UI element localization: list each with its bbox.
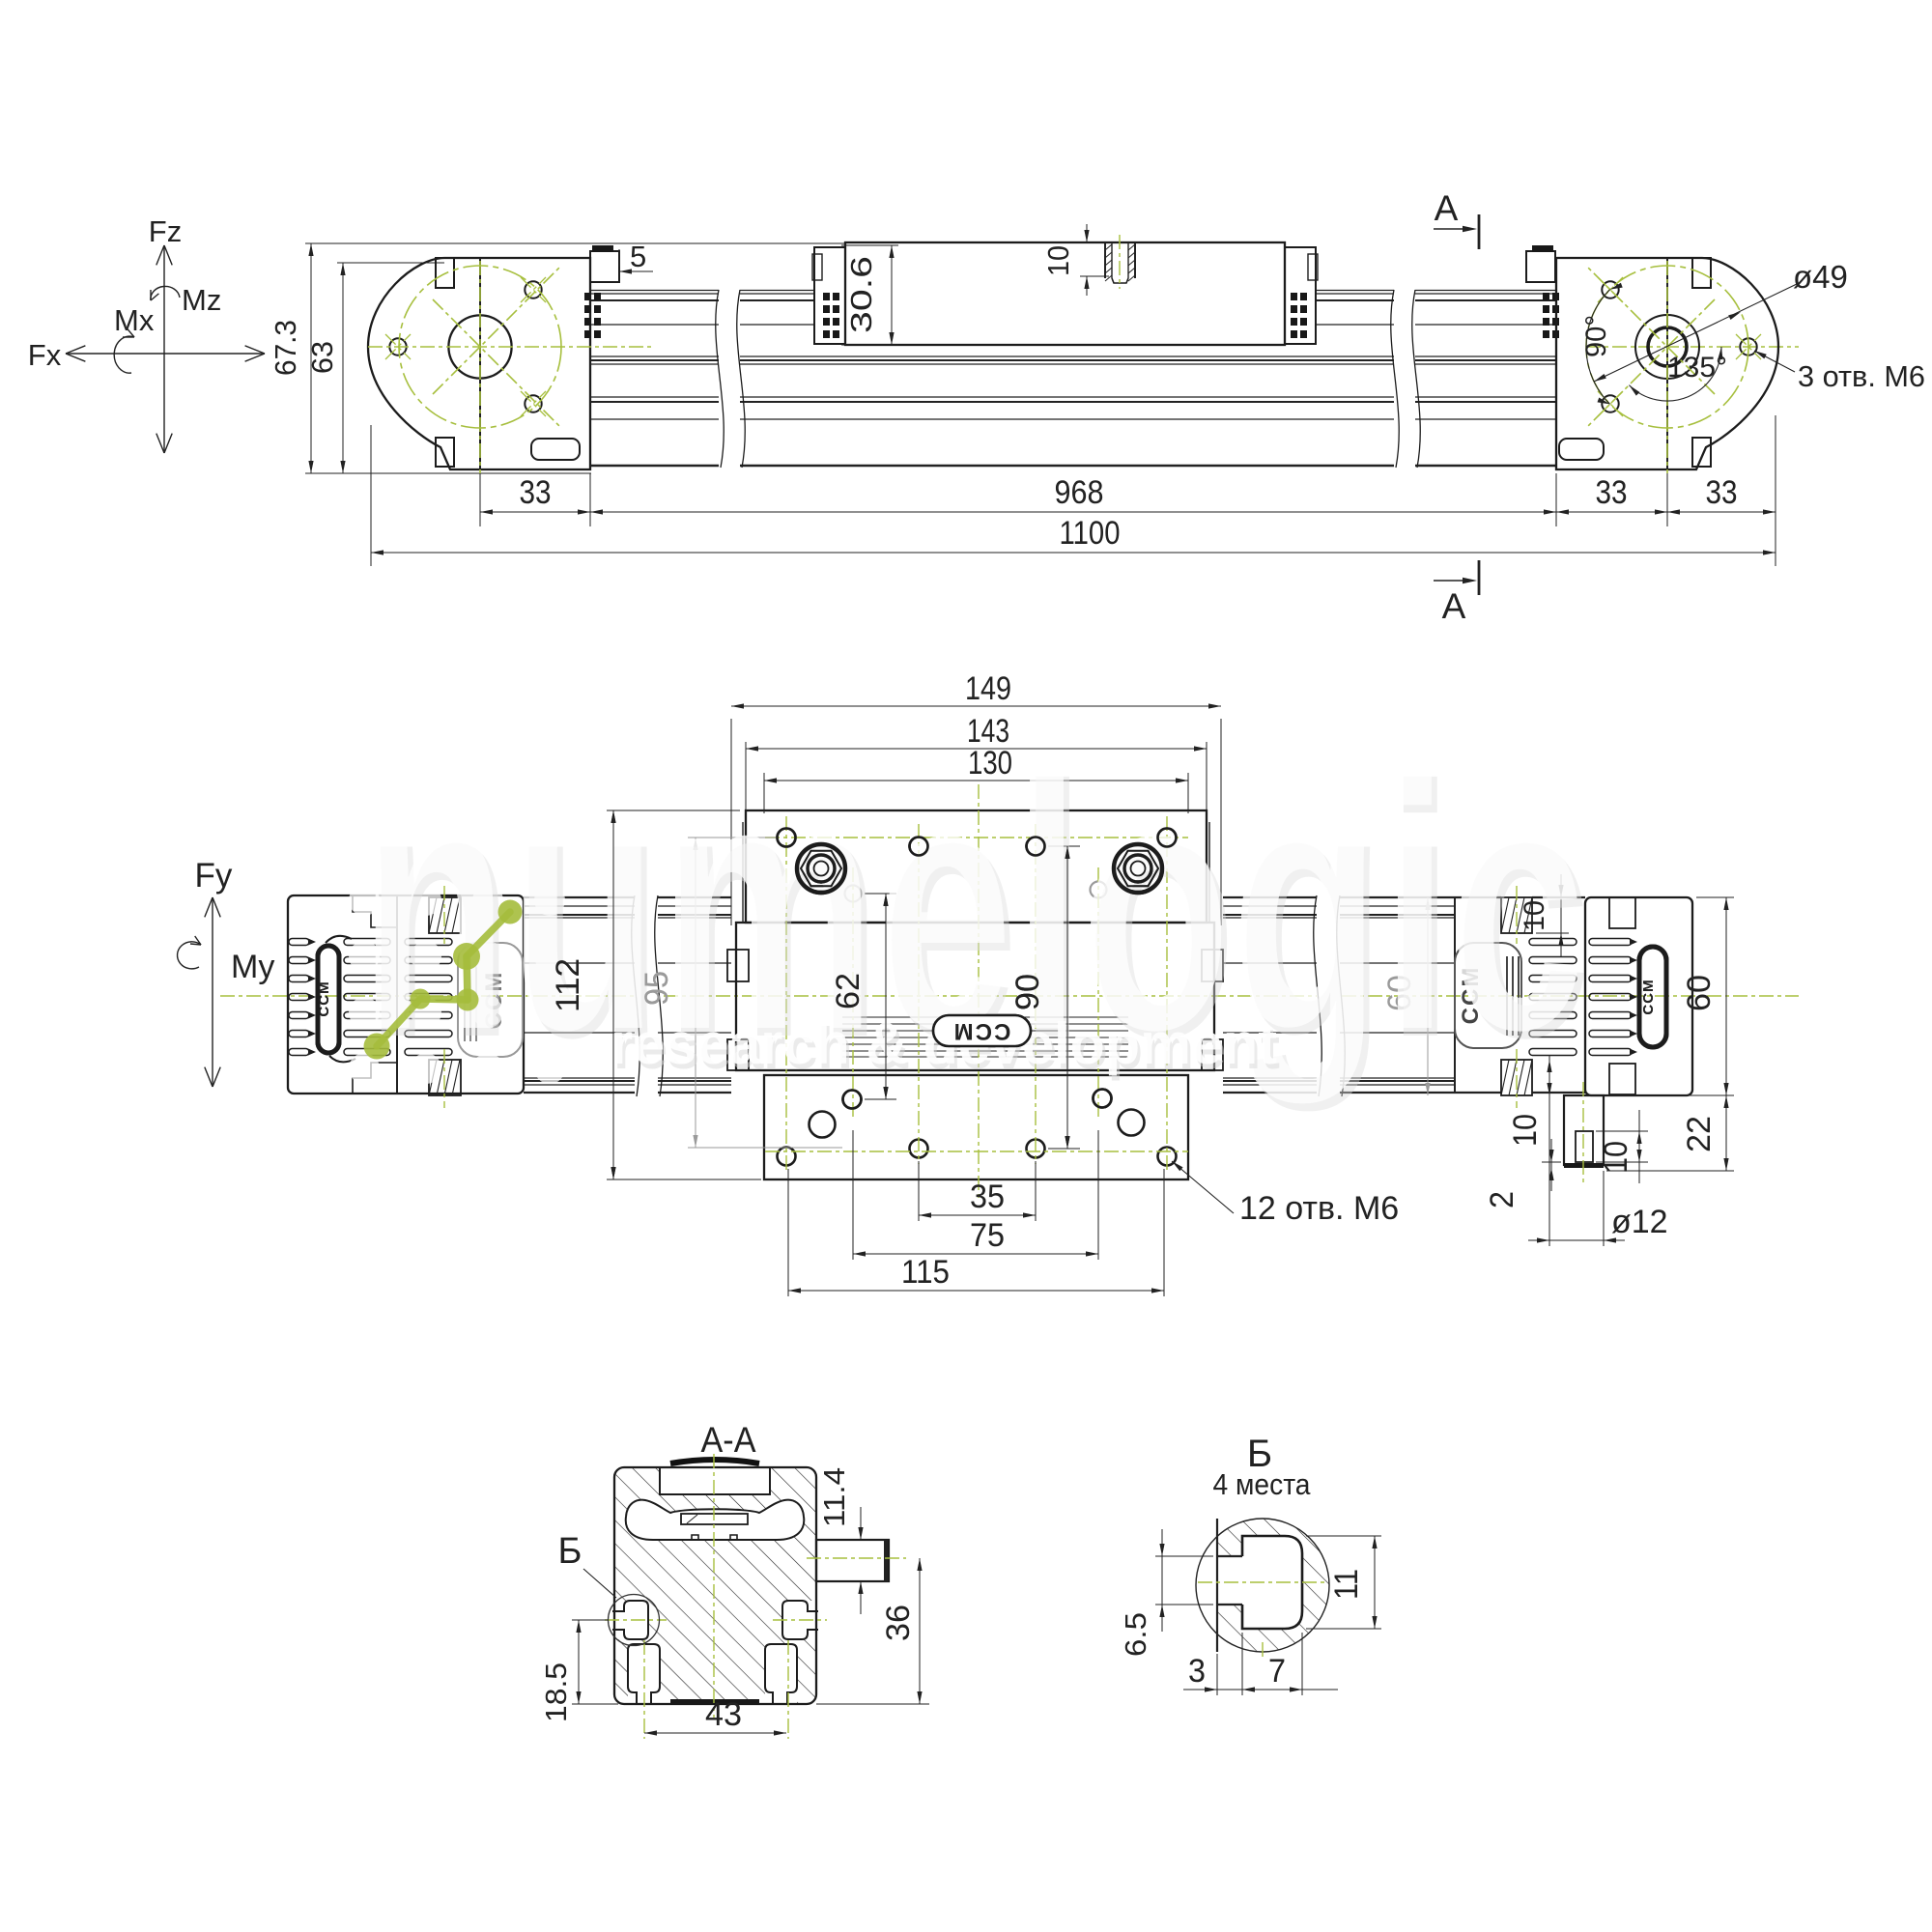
svg-text:Fy: Fy: [195, 857, 233, 895]
svg-text:22: 22: [1681, 1116, 1718, 1152]
svg-text:2: 2: [1484, 1191, 1520, 1208]
svg-text:A: A: [1435, 188, 1459, 228]
svg-text:60: 60: [1681, 975, 1718, 1011]
svg-text:Fz: Fz: [149, 214, 182, 248]
svg-text:33: 33: [1596, 474, 1628, 511]
svg-text:12 отв. М6: 12 отв. М6: [1239, 1190, 1399, 1227]
svg-text:3 отв. М6: 3 отв. М6: [1798, 359, 1925, 393]
svg-text:149: 149: [965, 670, 1011, 707]
svg-text:6.5: 6.5: [1119, 1612, 1152, 1657]
svg-text:My: My: [231, 949, 274, 985]
svg-text:95: 95: [639, 971, 675, 1006]
svg-text:112: 112: [550, 958, 586, 1012]
svg-text:10: 10: [1507, 1114, 1544, 1147]
svg-text:30.6: 30.6: [844, 256, 878, 333]
svg-text:90: 90: [1009, 974, 1046, 1010]
svg-text:3: 3: [1188, 1653, 1206, 1690]
svg-text:CCM: CCM: [316, 980, 332, 1016]
svg-text:36: 36: [880, 1605, 917, 1641]
svg-text:CCM: CCM: [1640, 979, 1657, 1014]
svg-text:10: 10: [1598, 1141, 1634, 1174]
svg-text:90°: 90°: [1580, 315, 1612, 357]
svg-text:Mz: Mz: [182, 283, 221, 317]
svg-text:11: 11: [1328, 1569, 1365, 1600]
svg-text:10: 10: [1041, 245, 1075, 276]
svg-text:5: 5: [630, 240, 646, 273]
svg-text:33: 33: [520, 474, 552, 511]
svg-text:75: 75: [970, 1217, 1005, 1254]
svg-text:7: 7: [1268, 1653, 1286, 1690]
svg-text:Б: Б: [558, 1531, 582, 1572]
svg-text:ø12: ø12: [1611, 1204, 1668, 1240]
svg-text:968: 968: [1055, 474, 1104, 511]
svg-text:ø49: ø49: [1793, 259, 1848, 295]
svg-text:11.4: 11.4: [817, 1467, 851, 1527]
svg-text:63: 63: [305, 341, 339, 374]
svg-text:Mx: Mx: [114, 303, 155, 337]
svg-text:35: 35: [970, 1179, 1005, 1215]
svg-text:18.5: 18.5: [539, 1662, 573, 1722]
svg-text:135°: 135°: [1667, 352, 1727, 384]
svg-text:115: 115: [901, 1254, 950, 1291]
svg-text:43: 43: [705, 1696, 742, 1733]
svg-text:A-A: A-A: [701, 1420, 756, 1460]
svg-text:1100: 1100: [1060, 515, 1121, 552]
svg-text:4 места: 4 места: [1213, 1467, 1312, 1501]
svg-text:67.3: 67.3: [269, 320, 302, 376]
svg-text:Fx: Fx: [28, 338, 62, 372]
svg-text:A: A: [1442, 586, 1466, 626]
svg-text:62: 62: [830, 973, 867, 1009]
svg-text:CCM: CCM: [952, 1018, 1011, 1044]
svg-text:33: 33: [1706, 474, 1738, 511]
